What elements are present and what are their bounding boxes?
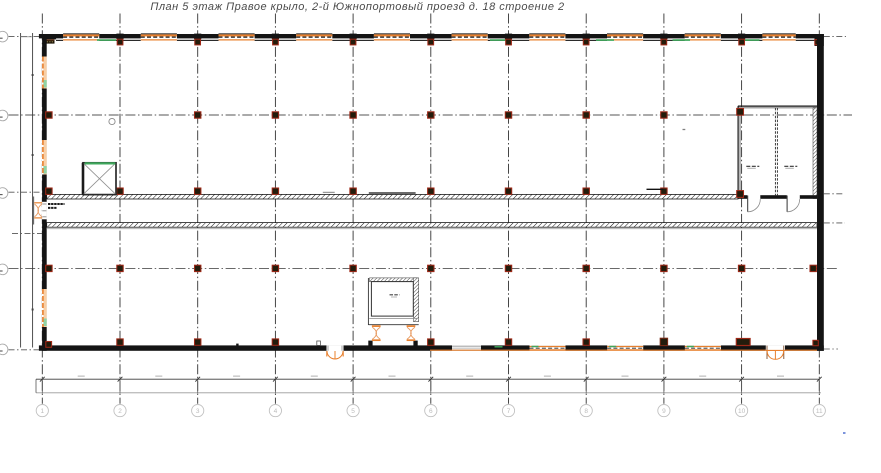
svg-text:10: 10 xyxy=(738,408,746,415)
svg-text:4: 4 xyxy=(274,408,278,415)
svg-text:6: 6 xyxy=(429,408,433,415)
svg-text:11: 11 xyxy=(816,408,823,415)
svg-text:9: 9 xyxy=(662,408,666,415)
svg-text:5: 5 xyxy=(351,408,355,415)
svg-text:2: 2 xyxy=(118,408,122,415)
svg-text:8: 8 xyxy=(584,408,588,415)
svg-text:1: 1 xyxy=(40,408,44,415)
svg-text:3: 3 xyxy=(196,408,200,415)
svg-text:7: 7 xyxy=(507,408,511,415)
